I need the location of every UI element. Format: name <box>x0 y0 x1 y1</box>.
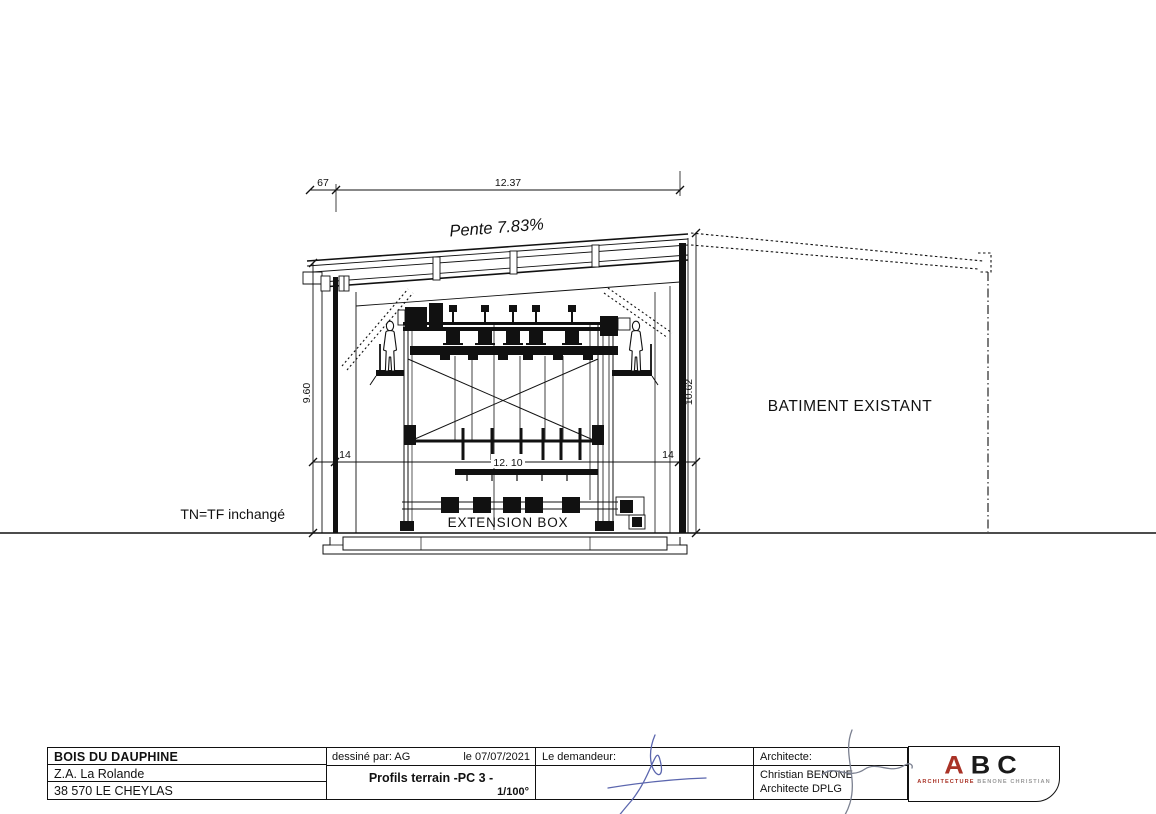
dim-interior-span-label: 12. 10 <box>493 457 522 469</box>
ground-level-label: TN=TF inchangé <box>180 506 285 522</box>
architect-logo: ABC ARCHITECTURE BENONE CHRISTIAN <box>908 746 1060 802</box>
drawing-sheet: 67 12.37 Pente 7.83% 9.60 10.62 14 14 12… <box>0 0 1156 814</box>
architect-title: Architecte DPLG <box>754 782 907 796</box>
roof-structure <box>303 234 688 306</box>
drawing-scale: 1/100° <box>497 786 529 798</box>
dim-roof-width-label: 12.37 <box>495 177 521 189</box>
dim-wall-left-label: 14 <box>339 449 351 461</box>
title-block-architect-column: Architecte: Christian BENONE Architecte … <box>753 748 907 799</box>
drawn-by: dessiné par: AG <box>332 749 410 764</box>
drawing-date: le 07/07/2021 <box>463 749 530 764</box>
foundation <box>323 537 687 554</box>
client-label: Le demandeur: <box>536 748 753 766</box>
person-figure-left <box>384 321 397 371</box>
extension-box-label: EXTENSION BOX <box>448 515 569 530</box>
machine-equipment <box>398 303 645 531</box>
existing-building <box>691 233 991 532</box>
section-drawing: 67 12.37 Pente 7.83% 9.60 10.62 14 14 12… <box>0 0 1156 745</box>
title-block-company-column: BOIS DU DAUPHINE Z.A. La Rolande 38 570 … <box>48 748 326 799</box>
title-block-client-column: Le demandeur: <box>535 748 753 799</box>
dim-wall-right-label: 14 <box>662 449 674 461</box>
architect-name: Christian BENONE <box>754 766 907 782</box>
company-name: BOIS DU DAUPHINE <box>48 748 326 765</box>
logo-subtext-left: ARCHITECTURE <box>917 779 974 785</box>
title-block: BOIS DU DAUPHINE Z.A. La Rolande 38 570 … <box>47 747 908 800</box>
company-address-line1: Z.A. La Rolande <box>48 765 326 782</box>
existing-building-label: BATIMENT EXISTANT <box>768 398 932 415</box>
logo-letter-a: A <box>944 751 971 779</box>
company-address-line2: 38 570 LE CHEYLAS <box>48 782 326 799</box>
logo-subtext-right: BENONE CHRISTIAN <box>977 779 1051 785</box>
architect-label: Architecte: <box>754 748 907 766</box>
logo-letters: ABC <box>909 752 1059 778</box>
logo-subtext: ARCHITECTURE BENONE CHRISTIAN <box>909 779 1059 786</box>
drawing-title: Profils terrain -PC 3 - <box>327 771 535 785</box>
logo-letters-bc: BC <box>971 751 1024 779</box>
dim-left-height-label: 9.60 <box>301 383 313 404</box>
title-block-drawing-column: dessiné par: AG le 07/07/2021 Profils te… <box>326 748 535 799</box>
dim-overhang-label: 67 <box>317 177 329 189</box>
person-figure-right <box>630 321 643 371</box>
dim-right-height-label: 10.62 <box>683 379 695 405</box>
pente-label: Pente 7.83% <box>449 215 545 240</box>
